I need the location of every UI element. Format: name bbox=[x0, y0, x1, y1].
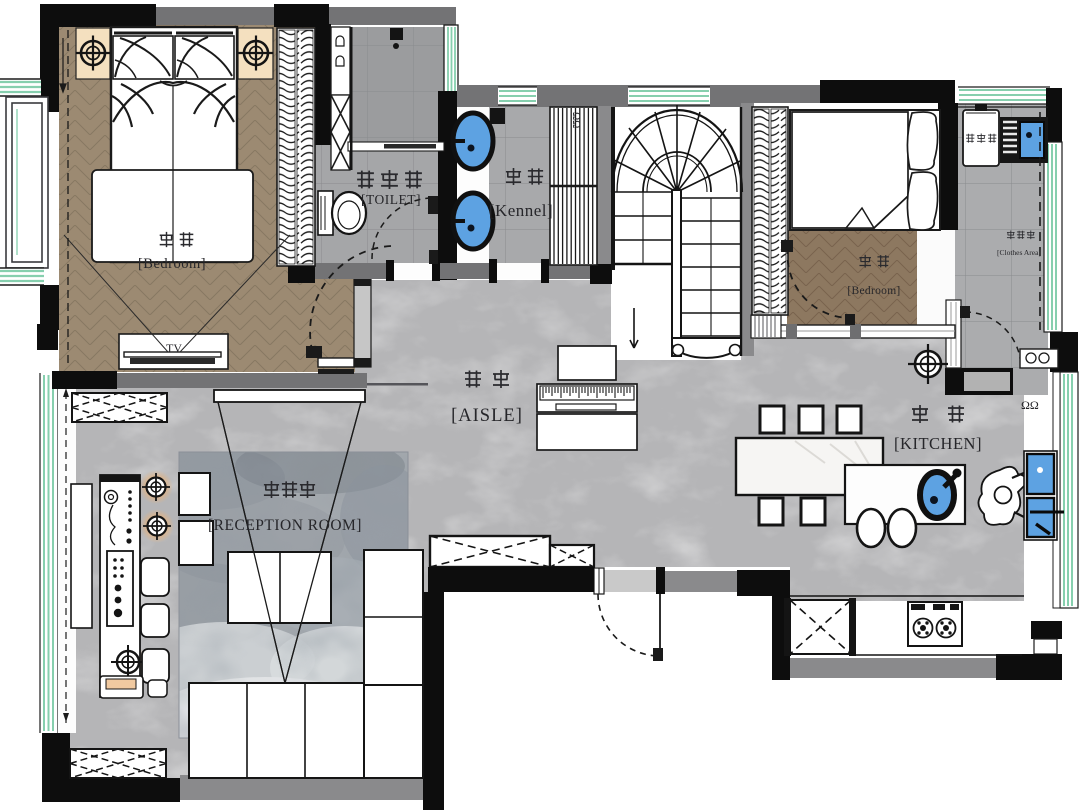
svg-text:ΩΩ: ΩΩ bbox=[1021, 398, 1039, 412]
svg-text:[KITCHEN]: [KITCHEN] bbox=[894, 434, 982, 453]
svg-text:[RECEPTION ROOM]: [RECEPTION ROOM] bbox=[208, 517, 362, 534]
svg-text:[Bedroom]: [Bedroom] bbox=[138, 256, 206, 272]
svg-text:ΩΩ: ΩΩ bbox=[570, 112, 582, 128]
svg-text:[Kennel]: [Kennel] bbox=[489, 201, 553, 220]
svg-text:TV: TV bbox=[166, 341, 182, 355]
svg-text:[Bedroom]: [Bedroom] bbox=[847, 285, 900, 297]
svg-text:[TOILET]: [TOILET] bbox=[361, 192, 421, 207]
svg-text:[AISLE]: [AISLE] bbox=[451, 406, 523, 426]
svg-text:[Clothes Area]: [Clothes Area] bbox=[997, 248, 1041, 257]
